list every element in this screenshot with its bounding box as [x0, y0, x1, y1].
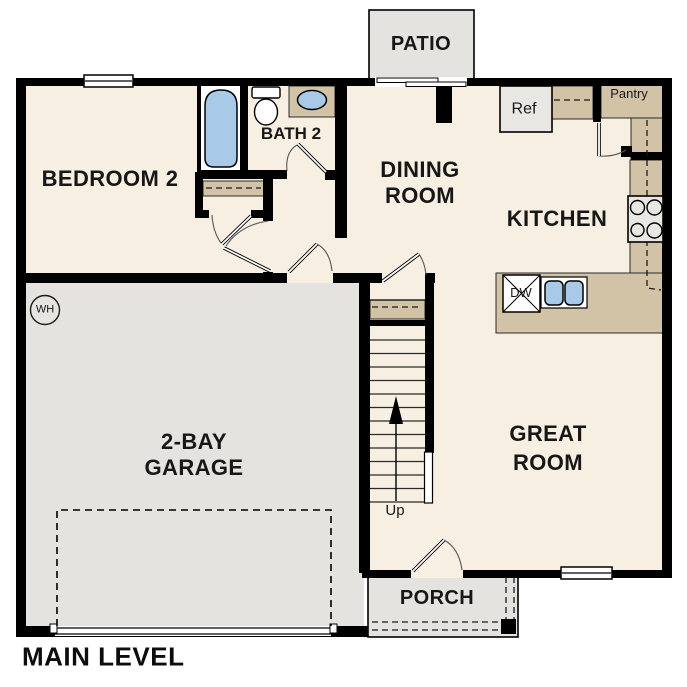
- front-door-opening: [411, 570, 463, 578]
- dining-room-label: DININGROOM: [380, 157, 459, 209]
- stairs-up-label: Up: [385, 502, 404, 520]
- stove: [628, 196, 663, 242]
- wall-stair-closet-bottom: [368, 320, 425, 326]
- wall-pantry-stub: [593, 86, 601, 122]
- patio-sliding-door: [375, 77, 467, 87]
- wall-greatroom-bottom: [362, 570, 672, 578]
- wall-closet-stub-left: [195, 210, 209, 218]
- great-room-window: [561, 567, 612, 579]
- bedroom-door-opening: [263, 221, 273, 272]
- wall-garage-right: [359, 273, 370, 573]
- hall-closet-shelf: [203, 181, 265, 196]
- floor-plan-drawing: [0, 0, 687, 687]
- bathtub: [205, 90, 237, 167]
- wall-tub-left: [197, 86, 201, 176]
- pantry-label: Pantry: [610, 86, 648, 102]
- vanity-sink: [298, 91, 327, 110]
- porch-label: PORCH: [400, 586, 474, 610]
- kitchen-sink: [541, 277, 587, 308]
- great-room-label: GREATROOM: [509, 419, 586, 477]
- toilet: [252, 87, 280, 125]
- wall-tub-right: [240, 86, 248, 176]
- porch-post: [501, 619, 516, 634]
- counter-beside-ref: [552, 86, 593, 119]
- kitchen-label: KITCHEN: [507, 206, 608, 232]
- floor-plan: BEDROOM 2 BATH 2 DININGROOM KITCHEN GREA…: [0, 0, 687, 687]
- garage-label: 2-BAYGARAGE: [145, 429, 244, 481]
- stair-closet-shelf: [370, 300, 425, 319]
- water-heater-label: WH: [36, 303, 54, 316]
- wall-bedroom-garage: [16, 273, 435, 283]
- bath2-label: BATH 2: [261, 124, 321, 144]
- wall-closet-stub-right: [251, 210, 273, 218]
- bedroom-window: [84, 75, 133, 87]
- refrigerator-label: Ref: [512, 99, 537, 118]
- wall-stair-right: [425, 277, 434, 453]
- garage-door-opening: [287, 273, 333, 283]
- patio-label: PATIO: [391, 32, 451, 56]
- wall-left: [16, 78, 26, 637]
- bedroom2-label: BEDROOM 2: [42, 166, 179, 192]
- wall-right: [662, 78, 672, 578]
- dishwasher-label: DW: [510, 285, 532, 301]
- wall-dining-left: [335, 86, 347, 238]
- plan-title: MAIN LEVEL: [22, 642, 184, 673]
- wall-kitchen-stub: [436, 86, 452, 123]
- handrail: [425, 452, 433, 503]
